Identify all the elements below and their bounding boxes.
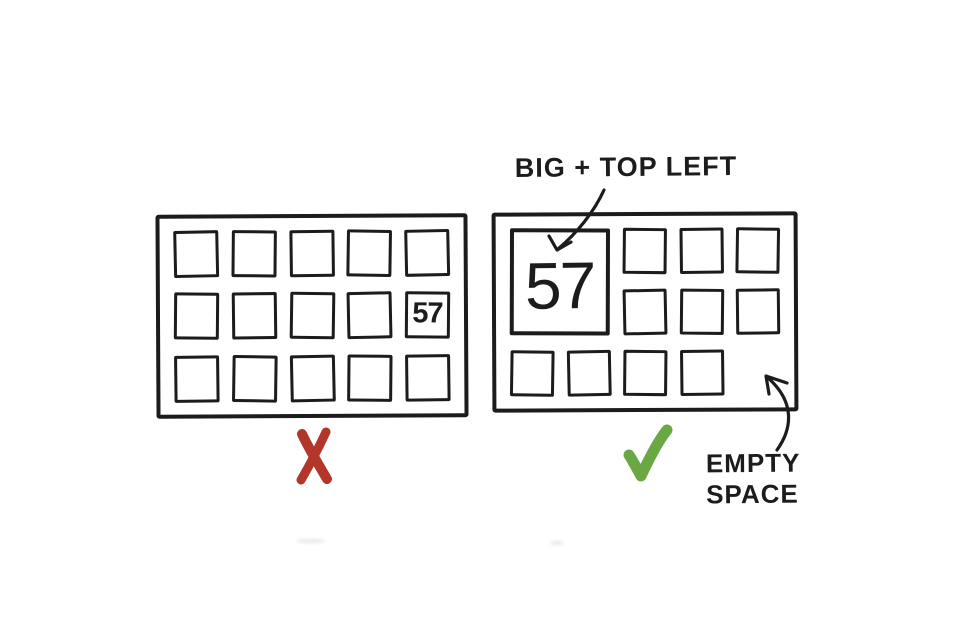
- grid-cell: [404, 229, 450, 277]
- grid-cell: [231, 230, 276, 278]
- green-check-icon: [620, 423, 674, 483]
- grid-cell: [680, 289, 724, 335]
- grid-cell: [623, 289, 668, 336]
- red-cross-icon: [293, 427, 335, 485]
- empty-space-area: [736, 349, 780, 396]
- empty-space-label: EMPTY SPACE: [706, 448, 801, 510]
- annotation-arrows-layer: [0, 0, 960, 640]
- good-grid: 57: [510, 227, 781, 396]
- grid-cell: [174, 355, 219, 403]
- grid-cell: [174, 293, 219, 341]
- good-dashboard-panel: 57: [492, 211, 799, 412]
- grid-cell: [566, 350, 611, 397]
- grid-cell: [232, 355, 277, 403]
- pencil-smudge: [550, 541, 564, 545]
- grid-cell: [348, 354, 393, 402]
- grid-cell: [289, 230, 334, 278]
- grid-cell: [347, 292, 393, 340]
- bad-grid: 57: [174, 229, 451, 402]
- small-value-cell: 57: [405, 292, 450, 340]
- grid-cell: [289, 354, 335, 402]
- grid-cell: [510, 350, 554, 397]
- grid-cell: [347, 229, 392, 277]
- grid-cell: [289, 292, 334, 340]
- grid-cell: [623, 228, 667, 274]
- bad-dashboard-panel: 57: [155, 213, 468, 419]
- grid-cell: [232, 292, 277, 340]
- pencil-smudge: [296, 539, 326, 543]
- grid-cell: [680, 350, 724, 396]
- grid-cell: [736, 227, 780, 274]
- grid-cell: [679, 228, 723, 274]
- grid-cell: [405, 354, 450, 402]
- grid-cell: [736, 288, 780, 334]
- big-value: 57: [525, 245, 595, 318]
- grid-cell: [173, 230, 219, 278]
- big-top-left-label: BIG + TOP LEFT: [496, 151, 756, 184]
- grid-cell: [623, 350, 667, 396]
- sketch-canvas: BIG + TOP LEFT 57 57: [0, 0, 960, 640]
- big-value-cell: 57: [510, 228, 610, 335]
